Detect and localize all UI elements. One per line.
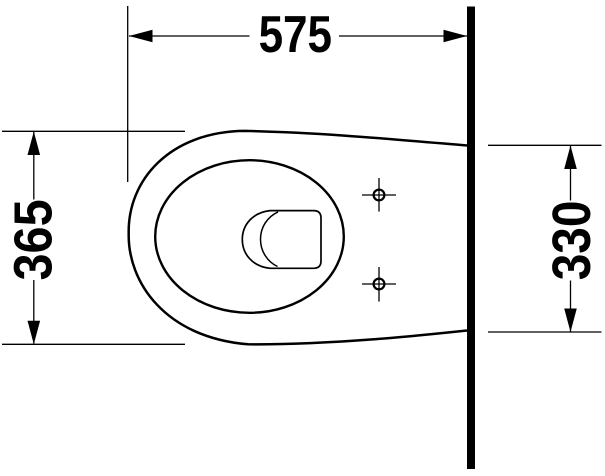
svg-text:330: 330 bbox=[541, 200, 601, 280]
svg-text:575: 575 bbox=[259, 6, 332, 64]
svg-text:365: 365 bbox=[3, 199, 63, 280]
